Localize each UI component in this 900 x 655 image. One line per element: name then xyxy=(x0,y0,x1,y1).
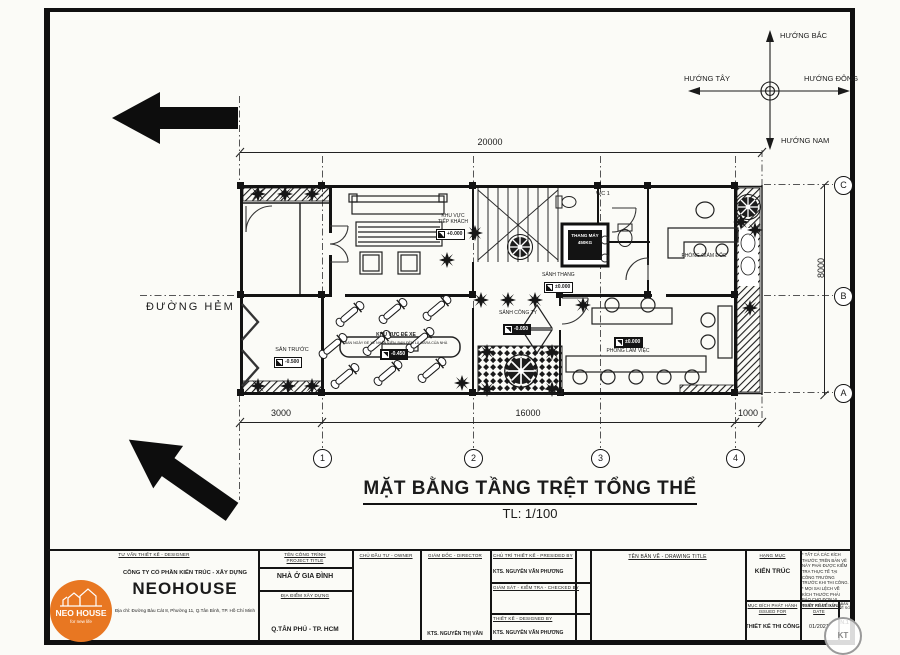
director-room-label: PHÒNG GIÁM ĐỐC xyxy=(678,253,730,259)
drawing-scale: TL: 1/100 xyxy=(250,506,810,521)
level-icon xyxy=(616,339,623,346)
titleblock-line xyxy=(258,567,352,569)
compass-south-label: HƯỚNG NAM xyxy=(781,136,829,145)
director-header: GIÁM ĐỐC - DIRECTOR xyxy=(422,553,488,558)
presided-header: CHỦ TRÌ THIẾT KẾ - PRESIDED BY xyxy=(493,553,573,558)
grid-bubble-2: 2 xyxy=(464,449,483,468)
issued-header-vi: MỤC ĐÍCH PHÁT HÀNH xyxy=(747,603,798,608)
drawing-sheet: { "compass": {"north":"HƯỚNG BẮC","west"… xyxy=(0,0,900,646)
office-level-marker: ±0.000 xyxy=(614,337,643,348)
office-label: PHÒNG LÀM VIỆC xyxy=(602,348,654,354)
grid-bubble-4: 4 xyxy=(726,449,745,468)
category-value: KIẾN TRÚC xyxy=(747,568,798,575)
stair-lobby-label: SẢNH THANG xyxy=(542,272,575,278)
level-icon xyxy=(505,326,512,333)
titleblock-top-line xyxy=(48,549,851,551)
approval-stamp: KT xyxy=(824,617,862,655)
titleblock-line xyxy=(420,550,422,641)
category-header: HẠNG MỤC xyxy=(747,553,798,558)
sheet-header: BẢN VẼ SỐ xyxy=(838,602,851,610)
titleblock-line xyxy=(590,550,592,641)
date-header-vi: NGÀY PHÁT HÀNH xyxy=(801,603,837,608)
titleblock-line xyxy=(258,590,352,592)
elevator-label: THANG MÁY 450KG xyxy=(563,233,607,247)
issued-value: THIẾT KẾ THI CÔNG xyxy=(744,624,801,630)
compass-north-label: HƯỚNG BẮC xyxy=(780,31,827,40)
level-icon xyxy=(382,351,389,358)
designer-header: TƯ VẤN THIẾT KẾ - DESIGNER xyxy=(58,552,250,557)
dim-top: 20000 xyxy=(460,137,520,147)
company-lobby-level-marker: -0.050 xyxy=(503,324,531,335)
director-furniture xyxy=(668,202,738,258)
compass-icon xyxy=(688,30,850,150)
designed-header: THIẾT KẾ - DESIGNED BY xyxy=(493,616,573,621)
checked-header: GIÁM SÁT - KIỂM TRA - CHECKED BY xyxy=(493,585,573,590)
location-header: ĐỊA ĐIỂM XÂY DỰNG xyxy=(260,593,350,598)
grid-bubble-3: 3 xyxy=(591,449,610,468)
titleblock-line xyxy=(490,613,590,615)
presided-name: KTS. NGUYỄN VĂN PHƯƠNG xyxy=(493,569,575,575)
titleblock-line xyxy=(352,550,354,641)
project-header-vi: TÊN CÔNG TRÌNH xyxy=(260,552,350,557)
project-name: NHÀ Ở GIA ĐÌNH xyxy=(260,573,350,580)
parking-level-marker: -0.450 xyxy=(380,349,408,360)
issued-header-en: ISSUED FOR xyxy=(747,609,798,614)
street-label: ĐƯỜNG HẺM xyxy=(146,301,235,313)
front-yard-level-marker: -0.500 xyxy=(274,357,302,368)
office-furniture xyxy=(566,298,732,384)
reception-label: KHU VỰC TIẾP KHÁCH xyxy=(430,213,476,225)
notes-text: * TẤT CẢ CÁC KÍCH THƯỚC TRÊN BẢN VẼ NÀY … xyxy=(802,552,849,598)
level-icon xyxy=(276,359,283,366)
location-value: Q.TÂN PHÚ - TP. HCM xyxy=(260,626,350,633)
grid-bubble-A: A xyxy=(834,384,853,403)
titleblock-line xyxy=(490,582,590,584)
parking-note: BAN NGÀY ĐỂ XE NHÂN VIÊN, BAN ĐÊM LÀ GAR… xyxy=(340,341,452,345)
dim-bottom-1: 3000 xyxy=(261,408,301,418)
compass-west-label: HƯỚNG TÂY xyxy=(684,74,730,83)
dim-bottom-3: 1000 xyxy=(728,408,768,418)
dim-right: 8000 xyxy=(816,258,826,278)
company-lobby-label: SẢNH CÔNG TY xyxy=(494,310,542,316)
compass-east-label: HƯỚNG ĐÔNG xyxy=(804,74,858,83)
neohouse-logo: NEO HOUSE for new life xyxy=(50,580,112,642)
drawing-title-header: TÊN BẢN VẼ - DRAWING TITLE xyxy=(592,554,743,560)
grid-bubble-1: 1 xyxy=(313,449,332,468)
dim-bottom-2: 16000 xyxy=(498,408,558,418)
wc-label: WC 1 xyxy=(596,191,610,197)
level-icon xyxy=(546,284,553,291)
stair-lobby-level-marker: ±0.000 xyxy=(544,282,573,293)
company-address: Địa chỉ: Đường Bàu Cát 8, Phường 11, Q.T… xyxy=(110,608,260,613)
director-name: KTS. NGUYỄN THỊ VÂN xyxy=(419,631,491,637)
grid-bubble-C: C xyxy=(834,176,853,195)
front-yard-label: SÂN TRƯỚC xyxy=(268,347,316,353)
parking-label: KHU VỰC ĐỂ XE xyxy=(368,332,424,338)
titleblock-line xyxy=(490,550,492,641)
titleblock-line xyxy=(575,550,577,641)
project-header-en: PROJECT TITLE xyxy=(260,558,350,563)
company-type: CÔNG TY CỔ PHẦN KIẾN TRÚC - XÂY DỰNG xyxy=(112,570,258,576)
grid-bubble-B: B xyxy=(834,287,853,306)
drawing-title: MẶT BẰNG TẦNG TRỆT TỔNG THỂ xyxy=(250,478,810,505)
designed-name: KTS. NGUYỄN VĂN PHƯƠNG xyxy=(493,630,575,636)
date-header-en: DATE xyxy=(801,609,837,614)
level-icon xyxy=(438,231,445,238)
owner-header: CHỦ ĐẦU TƯ - OWNER xyxy=(354,553,418,558)
reception-level-marker: +0.000 xyxy=(436,229,465,240)
company-name: NEOHOUSE xyxy=(112,579,258,599)
